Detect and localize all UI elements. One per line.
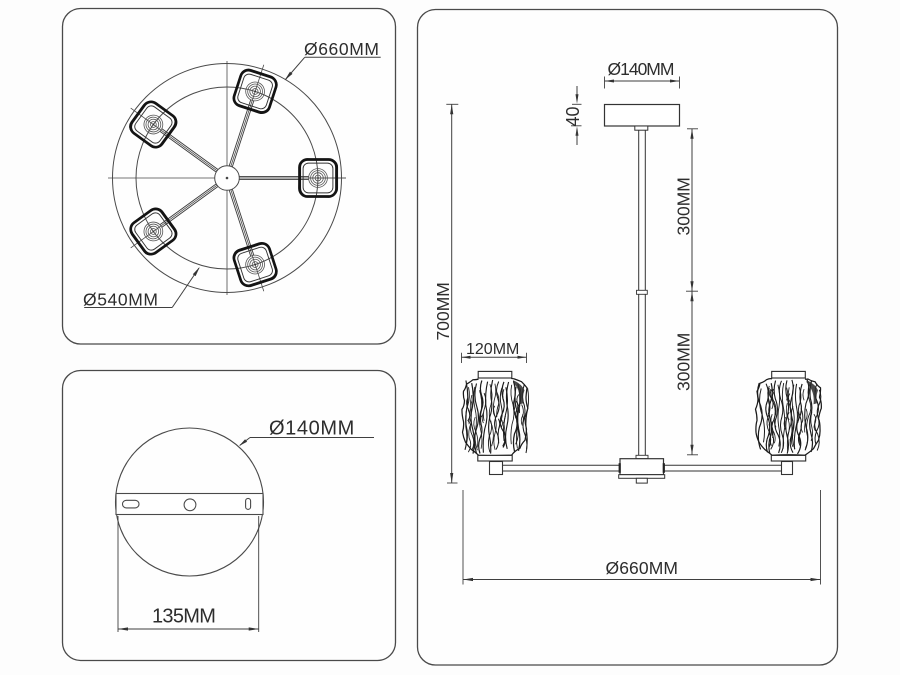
svg-text:135MM: 135MM xyxy=(152,606,215,628)
svg-text:300MM: 300MM xyxy=(674,333,694,391)
svg-text:300MM: 300MM xyxy=(674,177,694,235)
svg-text:Ø540MM: Ø540MM xyxy=(83,290,159,310)
svg-text:Ø660MM: Ø660MM xyxy=(606,558,679,578)
svg-text:700MM: 700MM xyxy=(433,282,453,340)
svg-text:120MM: 120MM xyxy=(466,341,519,358)
svg-text:Ø140MM: Ø140MM xyxy=(608,59,674,79)
svg-text:40: 40 xyxy=(563,106,583,126)
svg-text:Ø140MM: Ø140MM xyxy=(269,418,355,440)
svg-text:Ø660MM: Ø660MM xyxy=(304,39,380,59)
